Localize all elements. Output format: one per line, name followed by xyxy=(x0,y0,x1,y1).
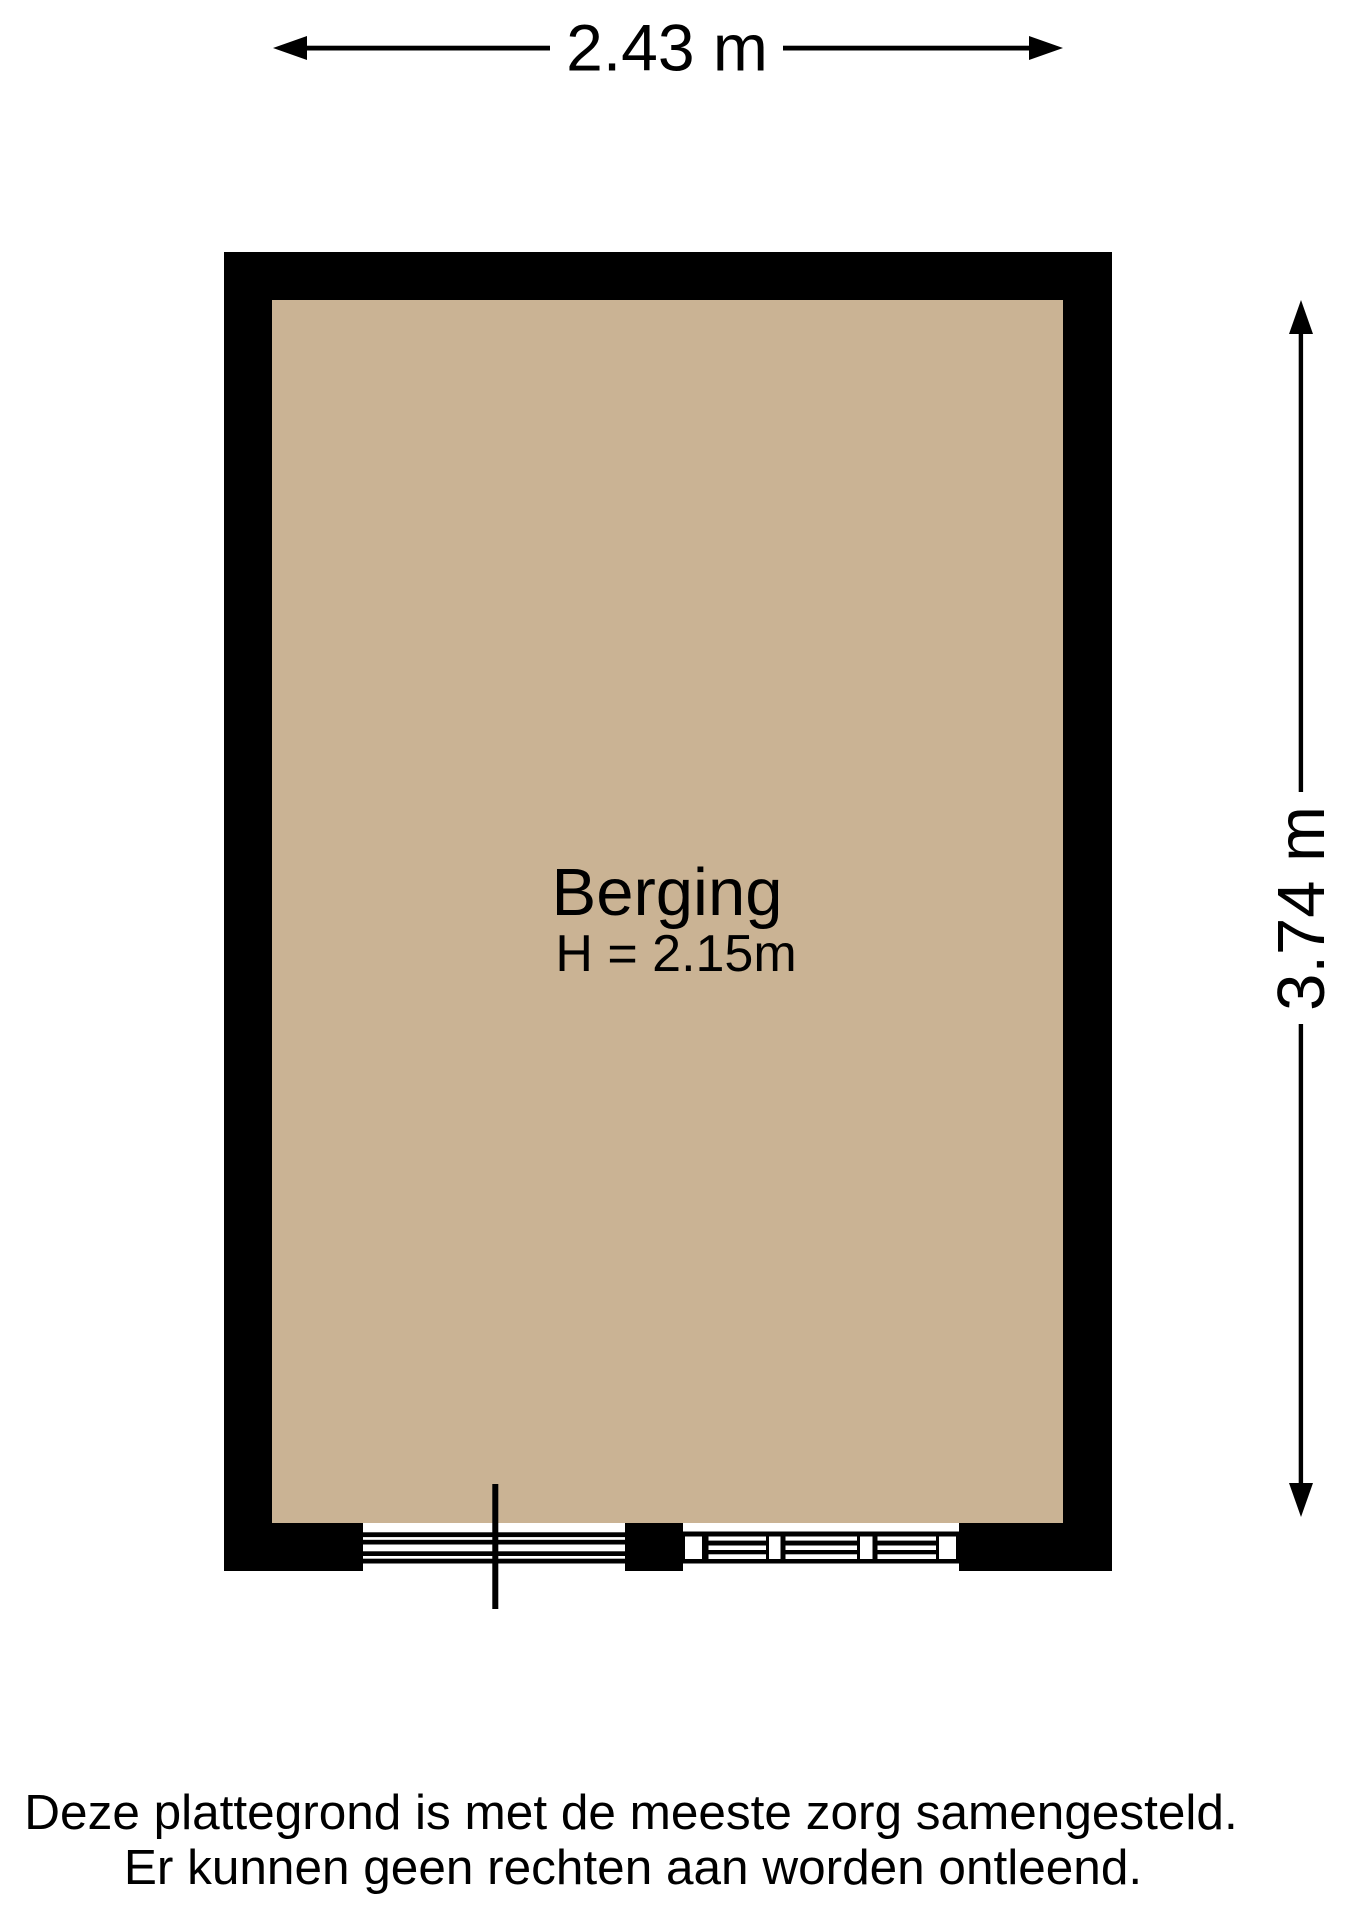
svg-text:2.43 m: 2.43 m xyxy=(566,11,768,85)
svg-text:H = 2.15m: H = 2.15m xyxy=(555,925,796,983)
svg-text:3.74 m: 3.74 m xyxy=(1264,806,1339,1011)
svg-text:Deze plattegrond is met de mee: Deze plattegrond is met de meeste zorg s… xyxy=(24,1785,1237,1840)
svg-text:Berging: Berging xyxy=(552,855,783,930)
svg-text:Er kunnen geen rechten aan wor: Er kunnen geen rechten aan worden ontlee… xyxy=(124,1840,1142,1895)
